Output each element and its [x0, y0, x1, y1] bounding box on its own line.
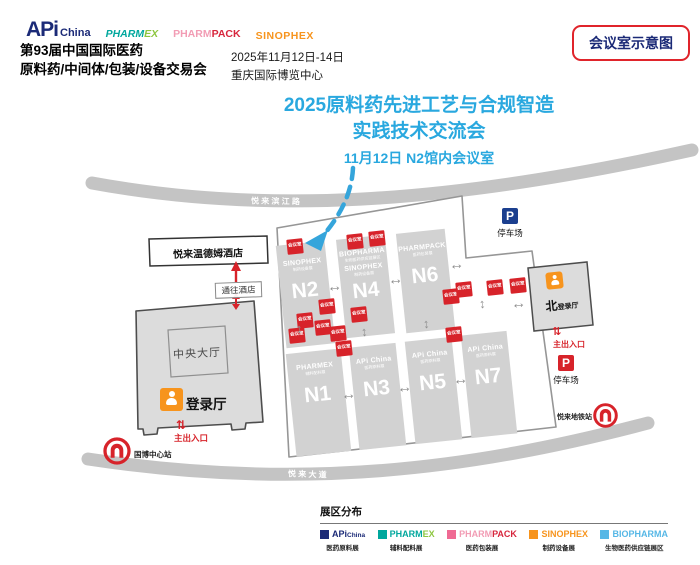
main-entrance-label: 主出入口: [543, 339, 595, 350]
schematic-title-badge: 会议室示意图: [572, 25, 690, 61]
road-bottom-label: 悦 来 大 道: [288, 468, 327, 479]
north-hall-person-icon: [545, 271, 564, 290]
hotel-arrow2-down: [232, 304, 240, 310]
hall-n7: APi China 医药原料展 N7: [461, 331, 518, 438]
parking-label: 停车场: [549, 374, 583, 386]
hall-connector-arrow-icon: ↔: [326, 278, 342, 294]
legend: 展区分布 APiChina 医药原料展 PHARMEX 辅料配料展: [320, 504, 668, 552]
blue-dashed-arrow: [326, 168, 353, 232]
meeting-room-marker: 会议室: [350, 306, 367, 323]
north-registration-hall-label: 北登录厅: [534, 293, 590, 317]
legend-item-pharmex: PHARMEX 辅料配料展: [378, 529, 435, 552]
hall-connector-arrow-icon: ↔: [452, 371, 468, 387]
meeting-announcement: 2025原料药先进工艺与合规智造 实践技术交流会 11月12日 N2馆内会议室: [230, 93, 608, 168]
hall-n6-sub: 医药包装展: [413, 251, 433, 257]
registration-person-icon: [160, 388, 183, 411]
hall-connector-arrow-icon: ↔: [396, 379, 412, 395]
meeting-room-marker: 会议室: [445, 326, 462, 343]
hall-n2-sub: 制药设备展: [293, 266, 313, 272]
metro-logo-icon: [592, 402, 619, 429]
hall-connector-arrow-icon: ↔: [510, 295, 526, 311]
hall-connector-arrow-icon: ↕: [295, 322, 303, 336]
hall-connector-arrow-icon: ↔: [448, 256, 464, 272]
hall-n7-sub: 医药原料展: [476, 352, 496, 358]
sinophex-logo: SINOPHEX: [256, 30, 314, 42]
legend-item-biopharma: BIOPHARMA 生物医药供应链展区: [600, 529, 668, 552]
announcement-line1: 2025原料药先进工艺与合规智造: [230, 93, 608, 119]
parking-icon: P: [558, 355, 574, 371]
pharmex-logo: PHARMEX: [106, 24, 159, 42]
meeting-room-marker: 会议室: [368, 230, 385, 247]
meeting-room-marker: 会议室: [335, 340, 352, 357]
legend-swatch: [447, 530, 456, 539]
legend-title: 展区分布: [320, 504, 668, 519]
hall-n5-id: N5: [418, 371, 447, 395]
legend-divider: [320, 523, 668, 524]
event-title: 第93届中国国际医药 原料药/中间体/包装/设备交易会: [20, 42, 207, 80]
api-china-logo: APiChina: [26, 18, 91, 42]
central-hall-label: 中央大厅: [168, 343, 227, 362]
event-date-venue: 2025年11月12日-14日 重庆国际博览中心: [231, 49, 344, 86]
parking-icon: P: [502, 208, 518, 224]
hall-n5-sub: 医药原料展: [420, 358, 440, 364]
to-hotel-label: 通往酒店: [215, 281, 263, 299]
hall-n7-id: N7: [474, 365, 503, 389]
metro-logo-icon: [102, 436, 132, 466]
main-entrance-label: 主出入口: [163, 432, 219, 444]
event-venue: 重庆国际博览中心: [231, 67, 344, 85]
legend-swatch: [378, 530, 387, 539]
registration-hall-label: 登录厅: [186, 393, 227, 413]
meeting-room-marker: 会议室: [346, 233, 363, 250]
brand-logo-row: APiChina PHARMEX PHARMPACK SINOPHEX: [26, 18, 314, 42]
main-entrance-icon: ⇅: [176, 419, 186, 431]
hall-n2-id: N2: [291, 279, 320, 303]
hall-n4-sub2: 制药设备展: [354, 271, 374, 277]
legend-item-pharmpack: PHARMPACK 医药包装展: [447, 529, 517, 552]
hotel-arrow-head: [231, 261, 241, 271]
hall-n1-sub: 辅料配料展: [305, 370, 325, 376]
hall-connector-arrow-icon: ↔: [340, 386, 356, 402]
hall-n3-id: N3: [362, 377, 391, 401]
road-top-label: 悦 来 滨 江 路: [251, 195, 301, 206]
announcement-line2: 实践技术交流会: [230, 119, 608, 145]
legend-swatch: [600, 530, 609, 539]
announcement-line3: 11月12日 N2馆内会议室: [230, 148, 608, 168]
main-entrance-icon: ⇅: [552, 327, 561, 338]
hall-n6-id: N6: [410, 264, 439, 288]
hall-n1-id: N1: [303, 383, 332, 407]
meeting-room-marker: 会议室: [486, 279, 503, 296]
parking-label: 停车场: [493, 227, 527, 239]
meeting-room-marker: 会议室: [455, 281, 472, 298]
meeting-room-marker: 会议室: [329, 325, 346, 342]
hall-connector-arrow-icon: ↕: [360, 325, 368, 339]
meeting-room-marker: 会议室: [509, 277, 526, 294]
legend-item-api: APiChina 医药原料展: [320, 529, 365, 552]
legend-swatch: [320, 530, 329, 539]
event-date: 2025年11月12日-14日: [231, 49, 344, 67]
hall-n3-sub: 医药原料展: [364, 364, 384, 370]
expo-map-flyer: APiChina PHARMEX PHARMPACK SINOPHEX 第93届…: [0, 0, 700, 565]
central-hall-building: [136, 301, 263, 435]
hall-n4-id: N4: [351, 279, 380, 303]
hotel-name: 悦来温德姆酒店: [151, 240, 265, 264]
pharmpack-logo: PHARMPACK: [173, 24, 240, 42]
legend-swatch: [529, 530, 538, 539]
meeting-room-marker: 会议室: [318, 298, 335, 315]
event-title-line2: 原料药/中间体/包装/设备交易会: [20, 61, 207, 80]
legend-item-sinophex: SINOPHEX 制药设备展: [529, 529, 588, 552]
hall-connector-arrow-icon: ↕: [422, 317, 430, 331]
metro-station-label: 悦来地铁站: [557, 412, 592, 422]
metro-station-label: 国博中心站: [134, 449, 172, 460]
hall-n5: APi China 医药原料展 N5: [405, 337, 463, 444]
event-title-line1: 第93届中国国际医药: [20, 42, 207, 61]
hall-connector-arrow-icon: ↕: [478, 297, 486, 311]
hall-connector-arrow-icon: ↔: [387, 271, 403, 287]
meeting-room-marker: 会议室: [286, 238, 303, 255]
